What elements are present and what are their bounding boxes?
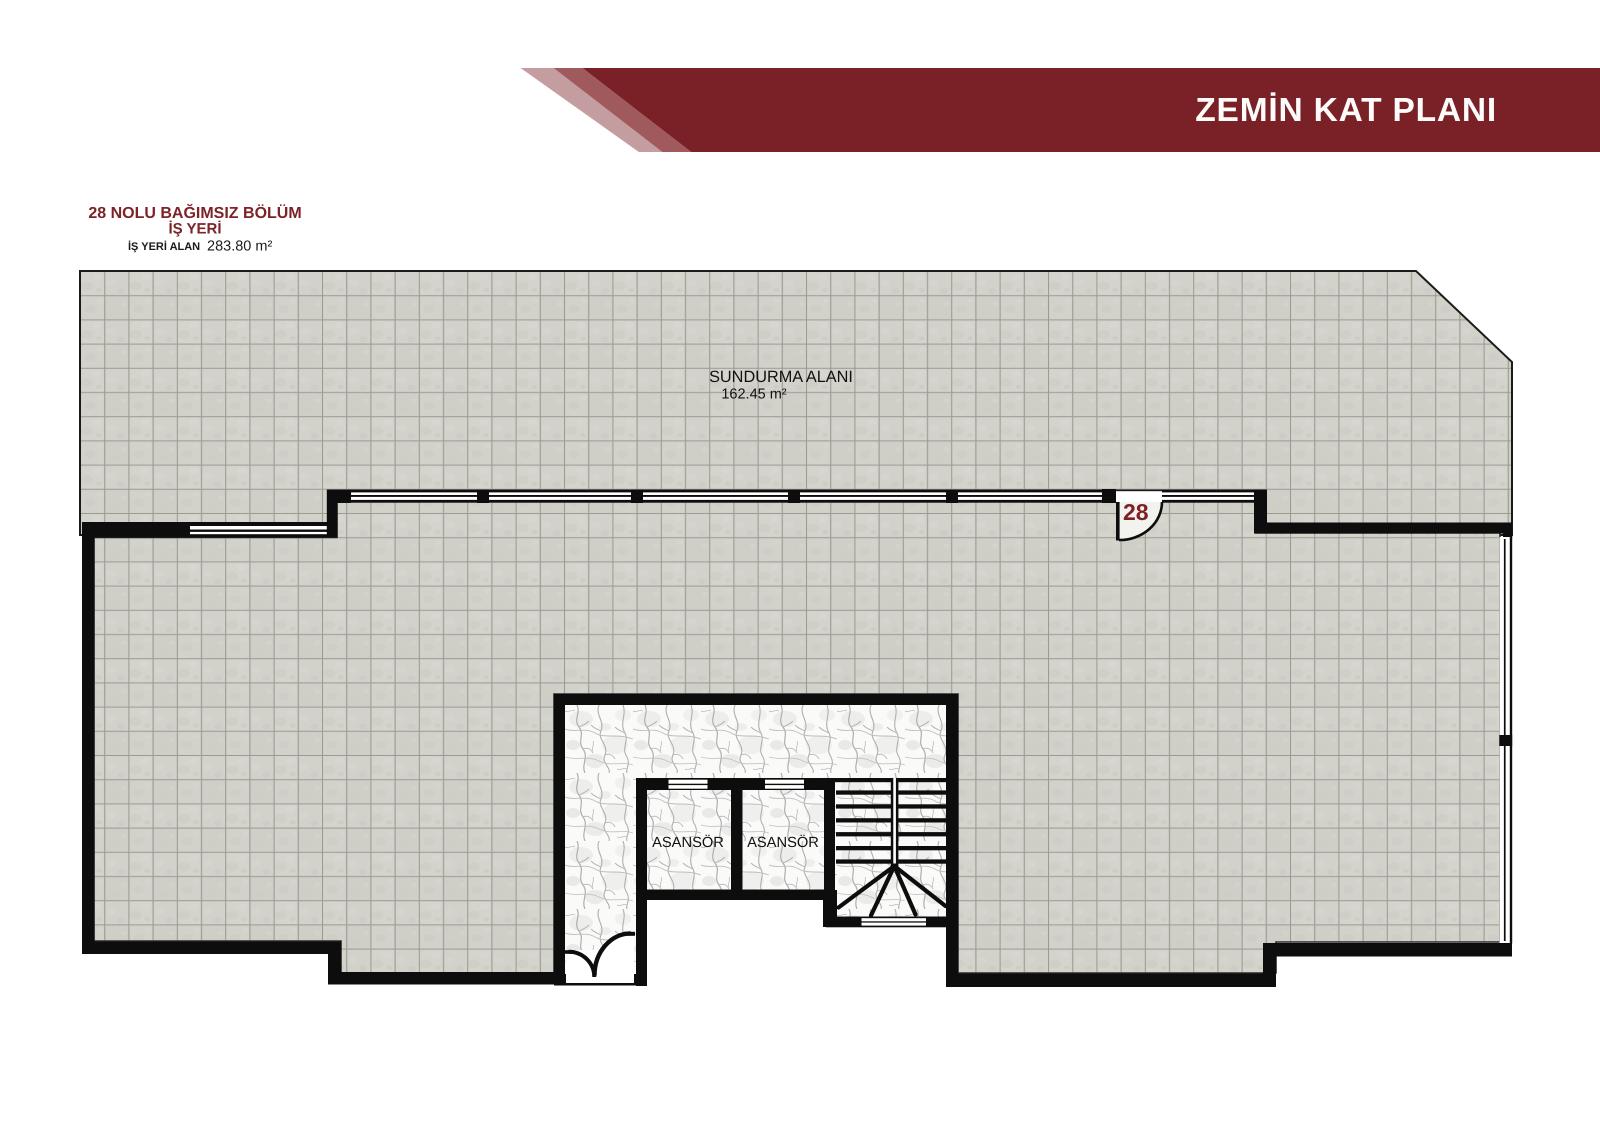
- svg-text:28: 28: [1123, 499, 1149, 525]
- svg-text:SUNDURMA ALANI: SUNDURMA ALANI: [709, 368, 853, 386]
- svg-text:ASANSÖR: ASANSÖR: [747, 834, 819, 851]
- svg-text:ZEMİN KAT PLANI: ZEMİN KAT PLANI: [1195, 92, 1497, 129]
- svg-text:İŞ YERİ: İŞ YERİ: [168, 221, 221, 238]
- svg-text:283.80 m²: 283.80 m²: [207, 239, 272, 255]
- svg-text:İŞ YERİ ALAN: İŞ YERİ ALAN: [128, 240, 200, 253]
- svg-text:28 NOLU BAĞIMSIZ BÖLÜM: 28 NOLU BAĞIMSIZ BÖLÜM: [88, 203, 301, 222]
- svg-text:ASANSÖR: ASANSÖR: [652, 834, 724, 851]
- svg-text:162.45 m²: 162.45 m²: [721, 387, 786, 403]
